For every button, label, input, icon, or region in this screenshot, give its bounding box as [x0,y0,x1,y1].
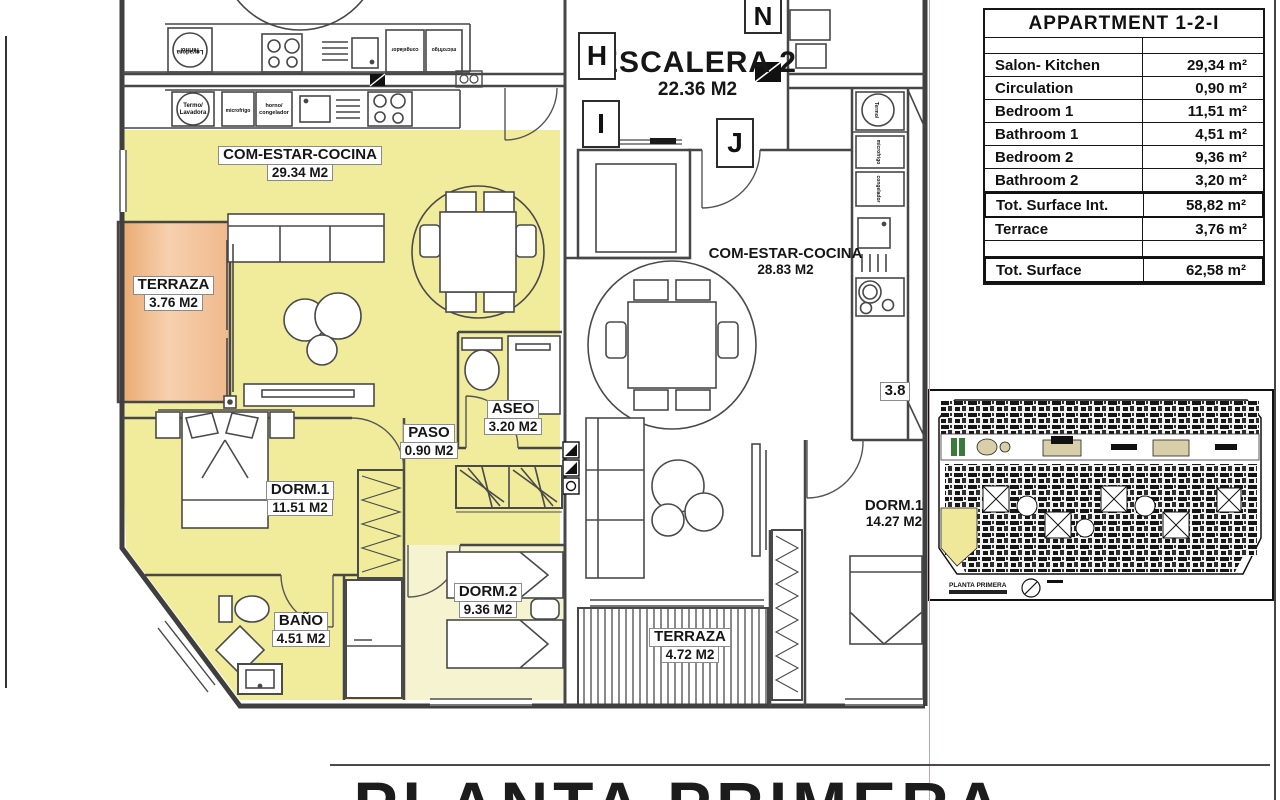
right-living-furniture [586,261,766,606]
table-row-total: Tot. Surface 62,58 m² [984,257,1264,283]
table-row-total-int: Tot. Surface Int. 58,82 m² [984,192,1264,218]
floorplan-sheet: Termo/ Lavadora microfrigo horno/ congel… [0,0,1280,800]
appliance-label: Termo/ [183,103,203,109]
room-name: ASEO [487,400,540,419]
table-row: Bathroom 2 3,20 m² [985,169,1263,192]
table-row: Bedroom 1 11,51 m² [985,100,1263,123]
table-row: Bathroom 1 4,51 m² [985,123,1263,146]
room-name: PASO [403,424,454,443]
appliance-label: horno/ [265,103,283,109]
row-value: 58,82 m² [1144,194,1262,216]
grid-letter-label: N [754,1,773,32]
row-label: Tot. Surface [986,259,1144,281]
row-value: 9,36 m² [1143,146,1263,168]
room-name: TERRAZA [649,628,731,647]
row-label: Salon- Kitchen [985,54,1143,76]
appliance-label: Lavadora [180,110,207,116]
table-row: Bedroom 2 9,36 m² [985,146,1263,169]
table-row: Salon- Kitchen 29,34 m² [985,54,1263,77]
grid-letter-label: H [587,40,607,72]
appliance-label: microfrigo [875,140,881,165]
area-table: APPARTMENT 1-2-I Salon- Kitchen 29,34 m²… [983,8,1265,285]
mini-overview-plan: PLANTA PRIMERA [929,390,1273,600]
room-label-dorm1-right: DORM.1 14.27 M2 [850,498,938,529]
room-label-comestar-left: COM-ESTAR-COCINA 29.34 M2 [212,146,388,181]
appliance-label: congelador [875,176,881,203]
room-name: BAÑO [274,612,328,631]
appliance-label: Lavadora [176,48,203,54]
room-area: 0.90 M2 [400,442,459,459]
sheet-right-border [1274,0,1276,800]
row-value: 29,34 m² [1143,54,1263,76]
row-value: 62,58 m² [1144,259,1262,281]
appliance-label: congelador [259,110,290,116]
room-name: COM-ESTAR-COCINA [218,146,382,165]
room-name: COM-ESTAR-COCINA [705,246,867,263]
room-name: DORM.2 [454,583,522,602]
room-name: ESCALERA 2 [594,46,801,80]
grid-letter-N: N [744,0,782,34]
grid-letter-H: H [578,32,616,80]
room-label-dorm2: DORM.2 9.36 M2 [448,583,528,618]
room-area: 3.8 [880,382,911,401]
room-label-bano: BAÑO 4.51 M2 [262,612,340,647]
row-value: 3,20 m² [1143,169,1263,191]
shaft-icons [563,442,579,494]
appliance-label: congelador [391,46,418,52]
room-label-aseo: ASEO 3.20 M2 [477,400,549,435]
room-name: TERRAZA [133,276,215,295]
table-row: Circulation 0,90 m² [985,77,1263,100]
left-window [118,150,127,212]
room-area: 22.36 M2 [654,79,741,100]
room-area: 4.72 M2 [661,646,720,663]
sheet-divider-line [929,0,930,800]
sheet-title: PLANTA PRIMERA [320,767,1040,800]
room-area: 9.36 M2 [459,601,518,618]
title-block-line [330,764,1270,766]
terrace-left-fill [118,222,230,402]
row-value: 3,76 m² [1143,218,1263,240]
room-area: 29.34 M2 [267,164,333,181]
row-label: Bathroom 1 [985,123,1143,145]
row-value: 4,51 m² [1143,123,1263,145]
grid-letter-I: I [582,100,620,148]
table-row: Terrace 3,76 m² [985,218,1263,241]
table-row-blank [985,241,1263,257]
room-name: DORM.1 [861,498,927,515]
room-label-dorm1-left: DORM.1 11.51 M2 [254,481,346,516]
right-bedroom-furniture [772,530,923,706]
room-area: 3.76 M2 [144,294,203,311]
room-name: DORM.1 [266,481,334,500]
room-label-cutoff: 3.8 [872,382,918,401]
grid-letter-J: J [716,118,754,168]
row-label: Bathroom 2 [985,169,1143,191]
sheet-left-border [5,36,7,688]
room-area: 11.51 M2 [267,499,333,516]
row-label: Circulation [985,77,1143,99]
room-label-comestar-right: COM-ESTAR-COCINA 28.83 M2 [698,246,873,277]
room-area: 14.27 M2 [862,514,926,529]
room-area: 28.83 M2 [753,262,817,277]
grid-letter-label: J [727,127,743,159]
room-label-terraza-left: TERRAZA 3.76 M2 [126,276,221,311]
table-row-blank [985,38,1263,54]
appliance-label: microfrigo [226,108,251,114]
room-label-paso: PASO 0.90 M2 [393,424,465,459]
row-label: Bedroom 2 [985,146,1143,168]
grid-letter-label: I [597,108,605,140]
appliance-label: Termo/ [873,102,879,119]
left-kitchen-row [122,90,460,128]
row-label: Terrace [985,218,1143,240]
appliance-label: microfrigo [432,46,457,52]
row-label: Tot. Surface Int. [986,194,1144,216]
row-label: Bedroom 1 [985,100,1143,122]
room-area: 4.51 M2 [272,630,331,647]
mini-plan-caption: PLANTA PRIMERA [949,582,1007,589]
room-label-terraza-bottom: TERRAZA 4.72 M2 [644,628,736,663]
room-label-escalera: ESCALERA 2 22.36 M2 [600,46,795,100]
row-value: 0,90 m² [1143,77,1263,99]
row-value: 11,51 m² [1143,100,1263,122]
area-table-title: APPARTMENT 1-2-I [985,10,1263,38]
room-area: 3.20 M2 [484,418,543,435]
